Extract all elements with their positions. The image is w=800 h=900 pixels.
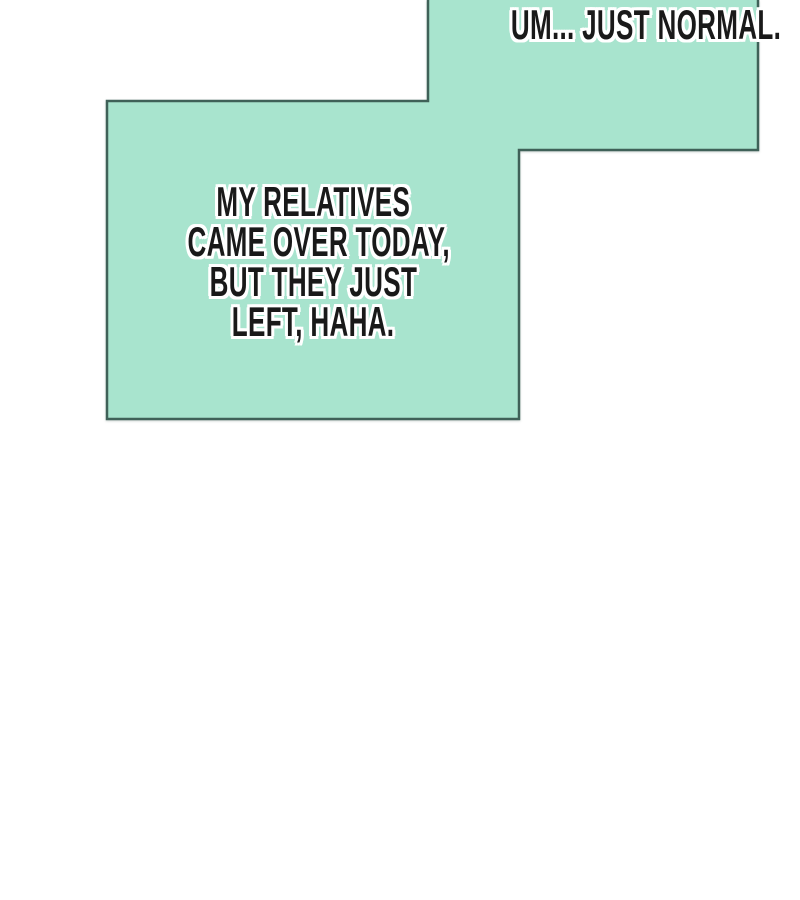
comic-page: UM... JUST NORMAL. MY RELATIVES CAME OVE… <box>0 0 800 900</box>
speech-bubble-right-text: UM... JUST NORMAL. <box>511 2 781 48</box>
speech-bubble-left-text-line: CAME OVER TODAY, <box>187 222 450 262</box>
speech-bubble-right-caption: UM... JUST NORMAL. <box>428 2 758 48</box>
speech-bubble-shape <box>0 0 800 900</box>
speech-bubble-left-text-line: MY RELATIVES <box>216 182 410 222</box>
speech-bubble-left-text-line: LEFT, HAHA. <box>232 302 395 342</box>
speech-bubble-left-text-line: BUT THEY JUST <box>209 262 417 302</box>
speech-bubble-left-caption: MY RELATIVES CAME OVER TODAY, BUT THEY J… <box>107 182 519 342</box>
